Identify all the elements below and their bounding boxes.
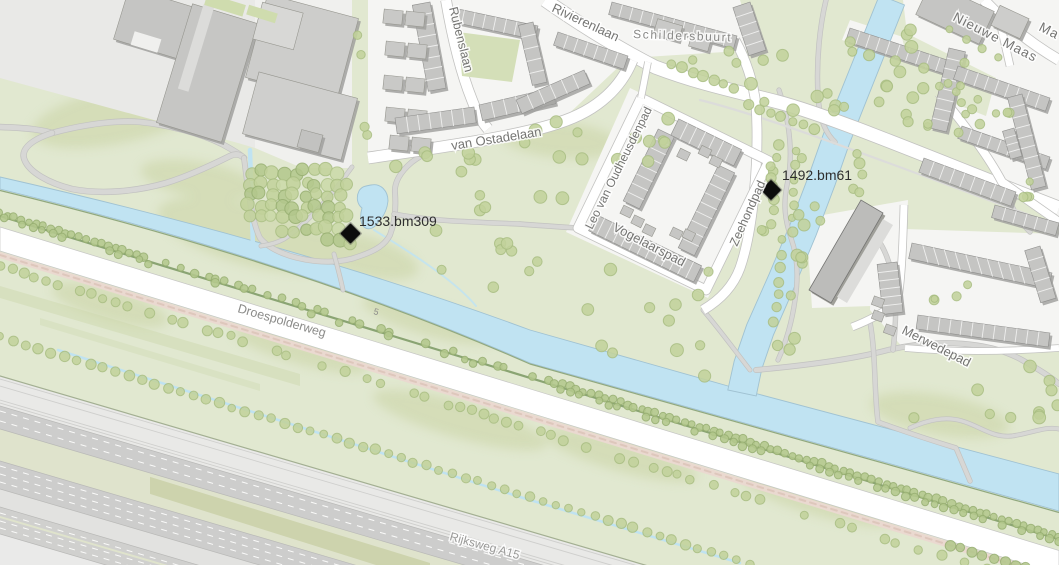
svg-text:1533.bm309: 1533.bm309 xyxy=(359,213,437,229)
svg-text:1492.bm61: 1492.bm61 xyxy=(782,167,852,183)
